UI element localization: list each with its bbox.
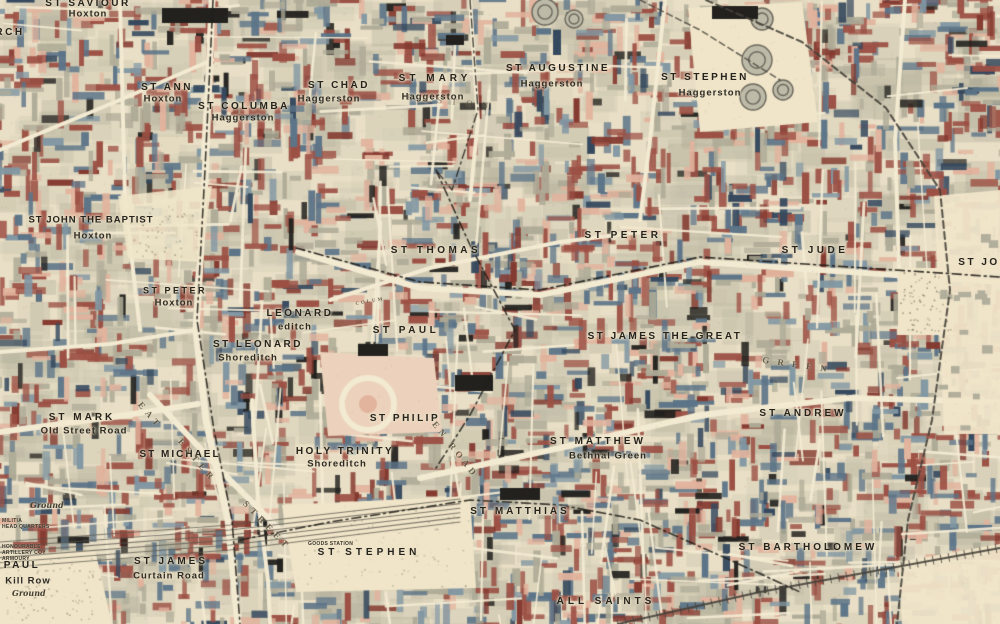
map-canvas — [0, 0, 1000, 624]
booth-poverty-map: ST SAVIOURHoxtonST ANNHoxtonST COLUMBAHa… — [0, 0, 1000, 624]
